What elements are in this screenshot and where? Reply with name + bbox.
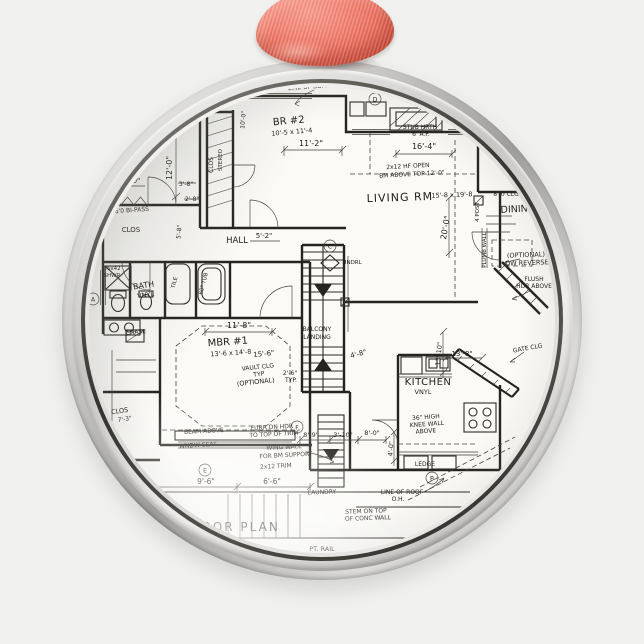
note-vnyl: VNYL	[415, 388, 432, 396]
dim-label: TYP.	[284, 377, 297, 384]
note-shwr: 36x42	[103, 266, 120, 272]
room-label-clos: CLOS	[111, 406, 129, 416]
ref-bubble-b: B	[430, 476, 434, 483]
note-tile: TILE	[170, 276, 179, 290]
note-stereo: STEREO	[218, 148, 224, 171]
note-vault: (OPTIONAL)	[236, 376, 275, 388]
fixtures-layer	[104, 102, 496, 538]
floor-plan-drawing: LINE OF SOFFIT CUT BR #2 10'-5 x 11'-4 1…	[89, 87, 555, 553]
note-tub: 60" TUB	[198, 272, 210, 295]
dim-label: 16'-4"	[412, 142, 436, 151]
ornament-frame: LINE OF SOFFIT CUT BR #2 10'-5 x 11'-4 1…	[62, 60, 582, 580]
walls-layer	[103, 96, 548, 470]
note-chase: CHASE	[125, 328, 146, 337]
note-ledge: LEDGE	[415, 461, 435, 468]
note-plumb: PLUMB WALL	[482, 231, 488, 267]
dim-label: 5'-8"	[175, 224, 183, 239]
dim-label: 20'-0"	[439, 215, 452, 240]
dim-label: 4'-0"	[386, 441, 395, 457]
note-balcony: BALCONY	[303, 326, 332, 333]
room-size-mbr1: 13'-6 x 14'-8	[210, 348, 252, 359]
note-kneewall: ABOVE	[415, 427, 436, 435]
dim-label: 2'-6"	[283, 370, 297, 377]
note-pt-rail: PT. RAIL	[309, 545, 335, 553]
note-furr: TO TOP OF TRIM	[248, 430, 298, 440]
note-bipass: 6'0 BI-PASS	[115, 206, 150, 215]
dim-label: 4'-8"	[349, 348, 367, 360]
product-photo: LINE OF SOFFIT CUT BR #2 10'-5 x 11'-4 1…	[0, 0, 644, 644]
note-wndw-seat: WNDW SEAT	[179, 441, 217, 450]
note-wingwall: FOR BM SUPPORT	[259, 451, 313, 461]
note-soffit: LINE OF SOFFIT CUT	[288, 87, 349, 92]
room-label-clos-vert: CLOS	[208, 157, 215, 173]
dim-label: 8'-0"	[124, 177, 141, 185]
note-roof-oh: LINE OF ROOF	[381, 489, 424, 496]
dim-label: 11'-8"	[227, 321, 251, 330]
room-size-living: 15'-8 x 19'-8	[431, 190, 472, 199]
note-flush-hdr: FLUSH	[524, 276, 543, 283]
note-hearth: 6' A.F.	[412, 131, 430, 138]
dim-label: 7'-3"	[117, 415, 132, 424]
dim-label: 6'-6"	[263, 477, 281, 486]
note-post: 4 POST	[475, 201, 481, 221]
room-label-dining: DINING	[500, 203, 535, 216]
ref-bubble-d: D	[373, 97, 378, 104]
ref-bubble-c: C	[328, 244, 332, 251]
dim-label: 12'-0"	[165, 156, 174, 180]
dim-label: 3'-8"	[179, 181, 193, 188]
title-floor-plan: FLOOR PLAN	[184, 520, 280, 534]
ref-bubble-f: F	[295, 425, 299, 432]
ribbon-knot	[256, 0, 394, 66]
dim-label: 10'-0"	[239, 110, 248, 129]
dim-label: 8'-9"	[303, 431, 318, 439]
note-beam-above: BEAM ABOVE	[184, 427, 224, 436]
floor-plan-paper: LINE OF SOFFIT CUT BR #2 10'-5 x 11'-4 1…	[89, 87, 555, 553]
dim-label: 11'-2"	[299, 139, 323, 148]
note-hearth: STUB HRTH	[403, 124, 437, 131]
note-dw: DW REVERSE	[505, 258, 549, 268]
note-flush-hdr: HDR ABOVE	[516, 283, 552, 290]
note-vnyl: VNYL	[137, 290, 155, 300]
note-shwr: SHWR	[104, 273, 121, 279]
hatch-layer	[126, 108, 538, 393]
dim-label: 2'-8"	[185, 196, 199, 203]
dim-label: 3'-10"	[333, 431, 353, 439]
note-landing: LANDING	[303, 334, 331, 341]
note-gate-clg: GATE CLG	[512, 342, 543, 354]
room-label-hall: HALL	[226, 236, 248, 246]
room-label-clos: CLOS	[122, 226, 141, 234]
note-clg: 8'-0 CLG	[493, 191, 519, 198]
dim-label: 13'-8"	[451, 350, 472, 358]
doors-layer	[108, 165, 500, 446]
ref-bubble-a: A	[91, 297, 96, 304]
room-label-living-rm: LIVING RM	[366, 190, 433, 205]
dim-label: 8'-0"	[364, 429, 379, 437]
ref-bubble-e: E	[203, 468, 207, 475]
note-hndrl: HNDRL	[342, 260, 362, 266]
room-label-kitchen: KITCHEN	[405, 377, 452, 388]
dim-label: 9'-6"	[197, 477, 215, 486]
note-roof-oh: O.H.	[392, 496, 405, 503]
dim-label: 5'-2"	[256, 232, 273, 240]
dim-label: 13'-10"	[434, 342, 444, 366]
room-label-laundry: LAUNDRY	[308, 488, 337, 496]
note-trim: 2x12 TRIM	[260, 462, 292, 471]
dim-label: 15'-6"	[253, 349, 275, 359]
note-stem: OF CONC WALL	[345, 514, 392, 523]
